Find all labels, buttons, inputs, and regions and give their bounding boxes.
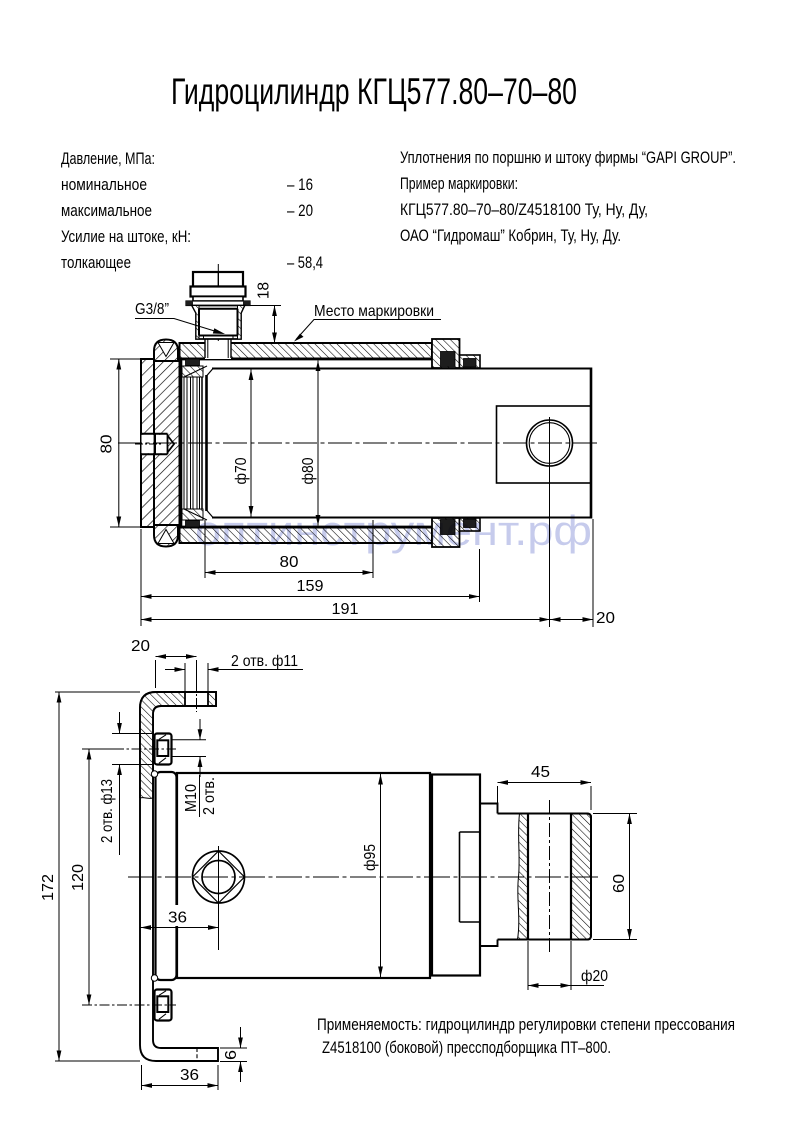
svg-text:оптинструмент.рф: оптинструмент.рф xyxy=(195,507,592,554)
svg-text:Пример маркировки:: Пример маркировки: xyxy=(400,175,518,193)
svg-text:2 отв.: 2 отв. xyxy=(201,777,218,815)
svg-text:120: 120 xyxy=(70,864,87,891)
svg-text:159: 159 xyxy=(297,578,324,595)
svg-text:Давление, МПа:: Давление, МПа: xyxy=(61,150,155,168)
svg-text:2 отв. ф13: 2 отв. ф13 xyxy=(99,779,116,843)
svg-text:М10: М10 xyxy=(183,784,200,812)
svg-text:– 20: – 20 xyxy=(287,202,313,220)
svg-text:18: 18 xyxy=(256,282,273,299)
svg-text:– 16: – 16 xyxy=(287,176,313,194)
svg-text:36: 36 xyxy=(180,1067,199,1084)
svg-text:80: 80 xyxy=(280,554,299,571)
svg-text:20: 20 xyxy=(131,638,150,655)
svg-text:80: 80 xyxy=(99,434,116,453)
svg-text:60: 60 xyxy=(611,874,628,893)
svg-text:– 58,4: – 58,4 xyxy=(287,254,323,272)
svg-text:Место маркировки: Место маркировки xyxy=(314,303,434,320)
svg-text:20: 20 xyxy=(596,610,615,627)
svg-text:ф95: ф95 xyxy=(362,844,379,871)
svg-text:Гидроцилиндр КГЦ577.80–70–80: Гидроцилиндр КГЦ577.80–70–80 xyxy=(171,71,577,112)
svg-text:Уплотнения по поршню и штоку ф: Уплотнения по поршню и штоку фирмы “GAPI… xyxy=(400,149,736,167)
svg-text:2 отв. ф11: 2 отв. ф11 xyxy=(231,653,298,670)
svg-text:ф80: ф80 xyxy=(300,457,317,484)
svg-text:ф20: ф20 xyxy=(581,968,608,985)
svg-text:ОАО “Гидромаш” Кобрин, Ту, Ну,: ОАО “Гидромаш” Кобрин, Ту, Ну, Ду. xyxy=(400,227,621,245)
svg-text:номинальное: номинальное xyxy=(61,176,147,194)
svg-text:максимальное: максимальное xyxy=(61,202,152,220)
svg-text:6: 6 xyxy=(223,1050,240,1060)
svg-text:191: 191 xyxy=(332,601,359,618)
svg-text:толкающее: толкающее xyxy=(61,254,131,272)
svg-text:Применяемость: гидроцилиндр ре: Применяемость: гидроцилиндр регулировки … xyxy=(317,1016,735,1034)
svg-text:КГЦ577.80–70–80/Z4518100 Ту, Н: КГЦ577.80–70–80/Z4518100 Ту, Ну, Ду, xyxy=(400,201,648,219)
svg-text:ф70: ф70 xyxy=(233,457,250,484)
svg-text:Усилие на штоке, кН:: Усилие на штоке, кН: xyxy=(61,228,191,246)
svg-text:172: 172 xyxy=(40,874,57,901)
svg-text:36: 36 xyxy=(168,910,187,927)
svg-text:G3/8”: G3/8” xyxy=(135,301,169,318)
svg-text:Z4518100 (боковой) прессподбор: Z4518100 (боковой) прессподборщика ПТ–80… xyxy=(322,1039,611,1057)
svg-text:45: 45 xyxy=(531,764,550,781)
